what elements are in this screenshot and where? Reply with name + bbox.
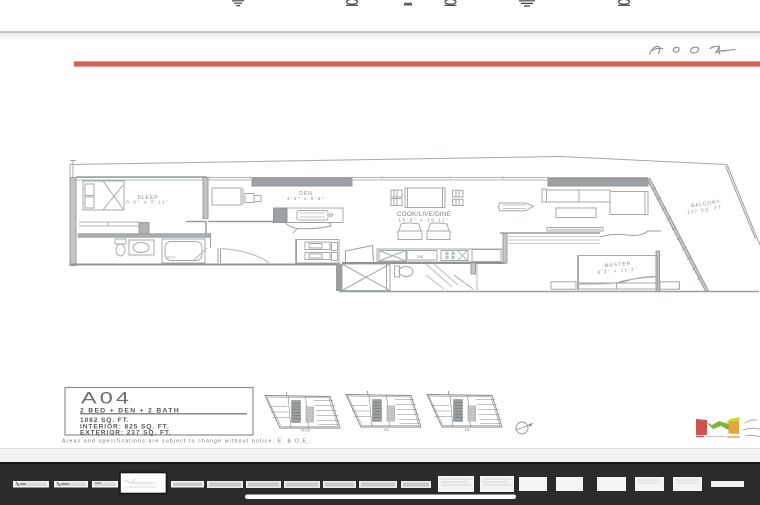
svg-text:DW: DW — [417, 254, 424, 259]
svg-text:BATH: BATH — [167, 256, 176, 260]
svg-text:EXTERIOR: 237 SQ. FT.: EXTERIOR: 237 SQ. FT. — [80, 430, 172, 437]
svg-text:9'3" x 11'3": 9'3" x 11'3" — [597, 266, 638, 275]
svg-text:4/5: 4/5 — [383, 428, 388, 432]
svg-text:14/28: 14/28 — [300, 429, 310, 433]
svg-text:4'3" x 8'6": 4'3" x 8'6" — [287, 196, 325, 201]
svg-text:16'8" x 19'11": 16'8" x 19'11" — [398, 218, 449, 223]
svg-text:3/8: 3/8 — [464, 428, 469, 432]
svg-text:A04: A04 — [81, 390, 132, 408]
svg-text:Areas and specifications are s: Areas and specifications are subject to … — [62, 439, 310, 445]
svg-text:8'0" x 8'11": 8'0" x 8'11" — [126, 200, 169, 205]
